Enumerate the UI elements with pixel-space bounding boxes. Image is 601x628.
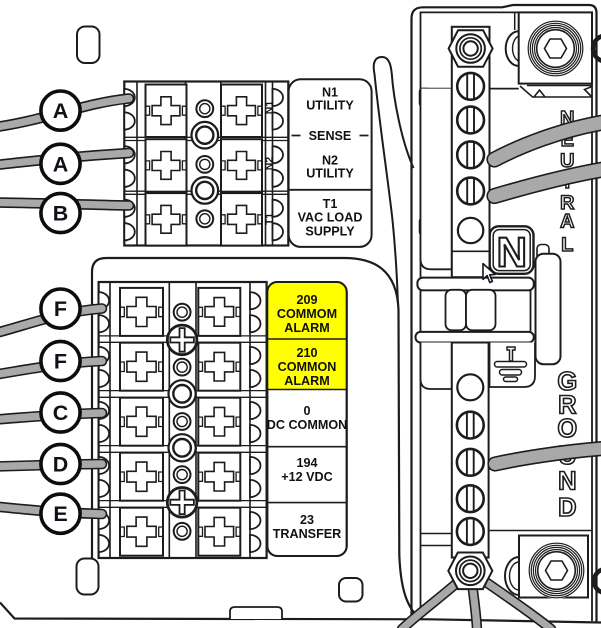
svg-text:VAC LOAD: VAC LOAD	[298, 211, 363, 225]
svg-text:+12 VDC: +12 VDC	[281, 470, 332, 484]
svg-text:SUPPLY: SUPPLY	[305, 225, 355, 239]
svg-text:DC COMMON: DC COMMON	[267, 418, 347, 432]
svg-text:209: 209	[296, 293, 317, 307]
svg-text:N2: N2	[264, 157, 276, 171]
svg-text:TRANSFER: TRANSFER	[273, 527, 342, 541]
svg-text:E: E	[53, 502, 67, 526]
svg-text:D: D	[53, 453, 69, 477]
svg-text:F: F	[54, 350, 67, 374]
svg-text:A: A	[560, 211, 574, 233]
svg-text:UTILITY: UTILITY	[306, 167, 354, 181]
svg-text:N2: N2	[322, 154, 338, 168]
svg-text:0: 0	[303, 404, 310, 418]
svg-text:N1: N1	[264, 101, 276, 115]
svg-text:N: N	[497, 229, 527, 276]
svg-text:COMMOM: COMMOM	[277, 307, 337, 321]
svg-text:T1: T1	[264, 213, 276, 225]
svg-text:A: A	[53, 152, 69, 176]
svg-text:A: A	[53, 99, 69, 123]
svg-text:N1: N1	[322, 86, 338, 100]
svg-text:UTILITY: UTILITY	[306, 99, 354, 113]
svg-text:T1: T1	[323, 197, 338, 211]
svg-text:D: D	[558, 494, 576, 522]
svg-text:194: 194	[296, 456, 317, 470]
svg-text:O: O	[557, 415, 577, 443]
svg-text:N: N	[558, 468, 576, 496]
svg-text:COMMON: COMMON	[278, 360, 337, 374]
svg-text:23: 23	[300, 513, 314, 527]
svg-text:ALARM: ALARM	[284, 374, 329, 388]
svg-text:210: 210	[296, 346, 317, 360]
svg-text:SENSE: SENSE	[309, 129, 352, 143]
svg-text:L: L	[561, 234, 573, 256]
svg-text:F: F	[54, 297, 67, 321]
svg-text:ALARM: ALARM	[284, 321, 329, 335]
svg-text:C: C	[53, 401, 69, 425]
svg-text:B: B	[53, 202, 69, 226]
